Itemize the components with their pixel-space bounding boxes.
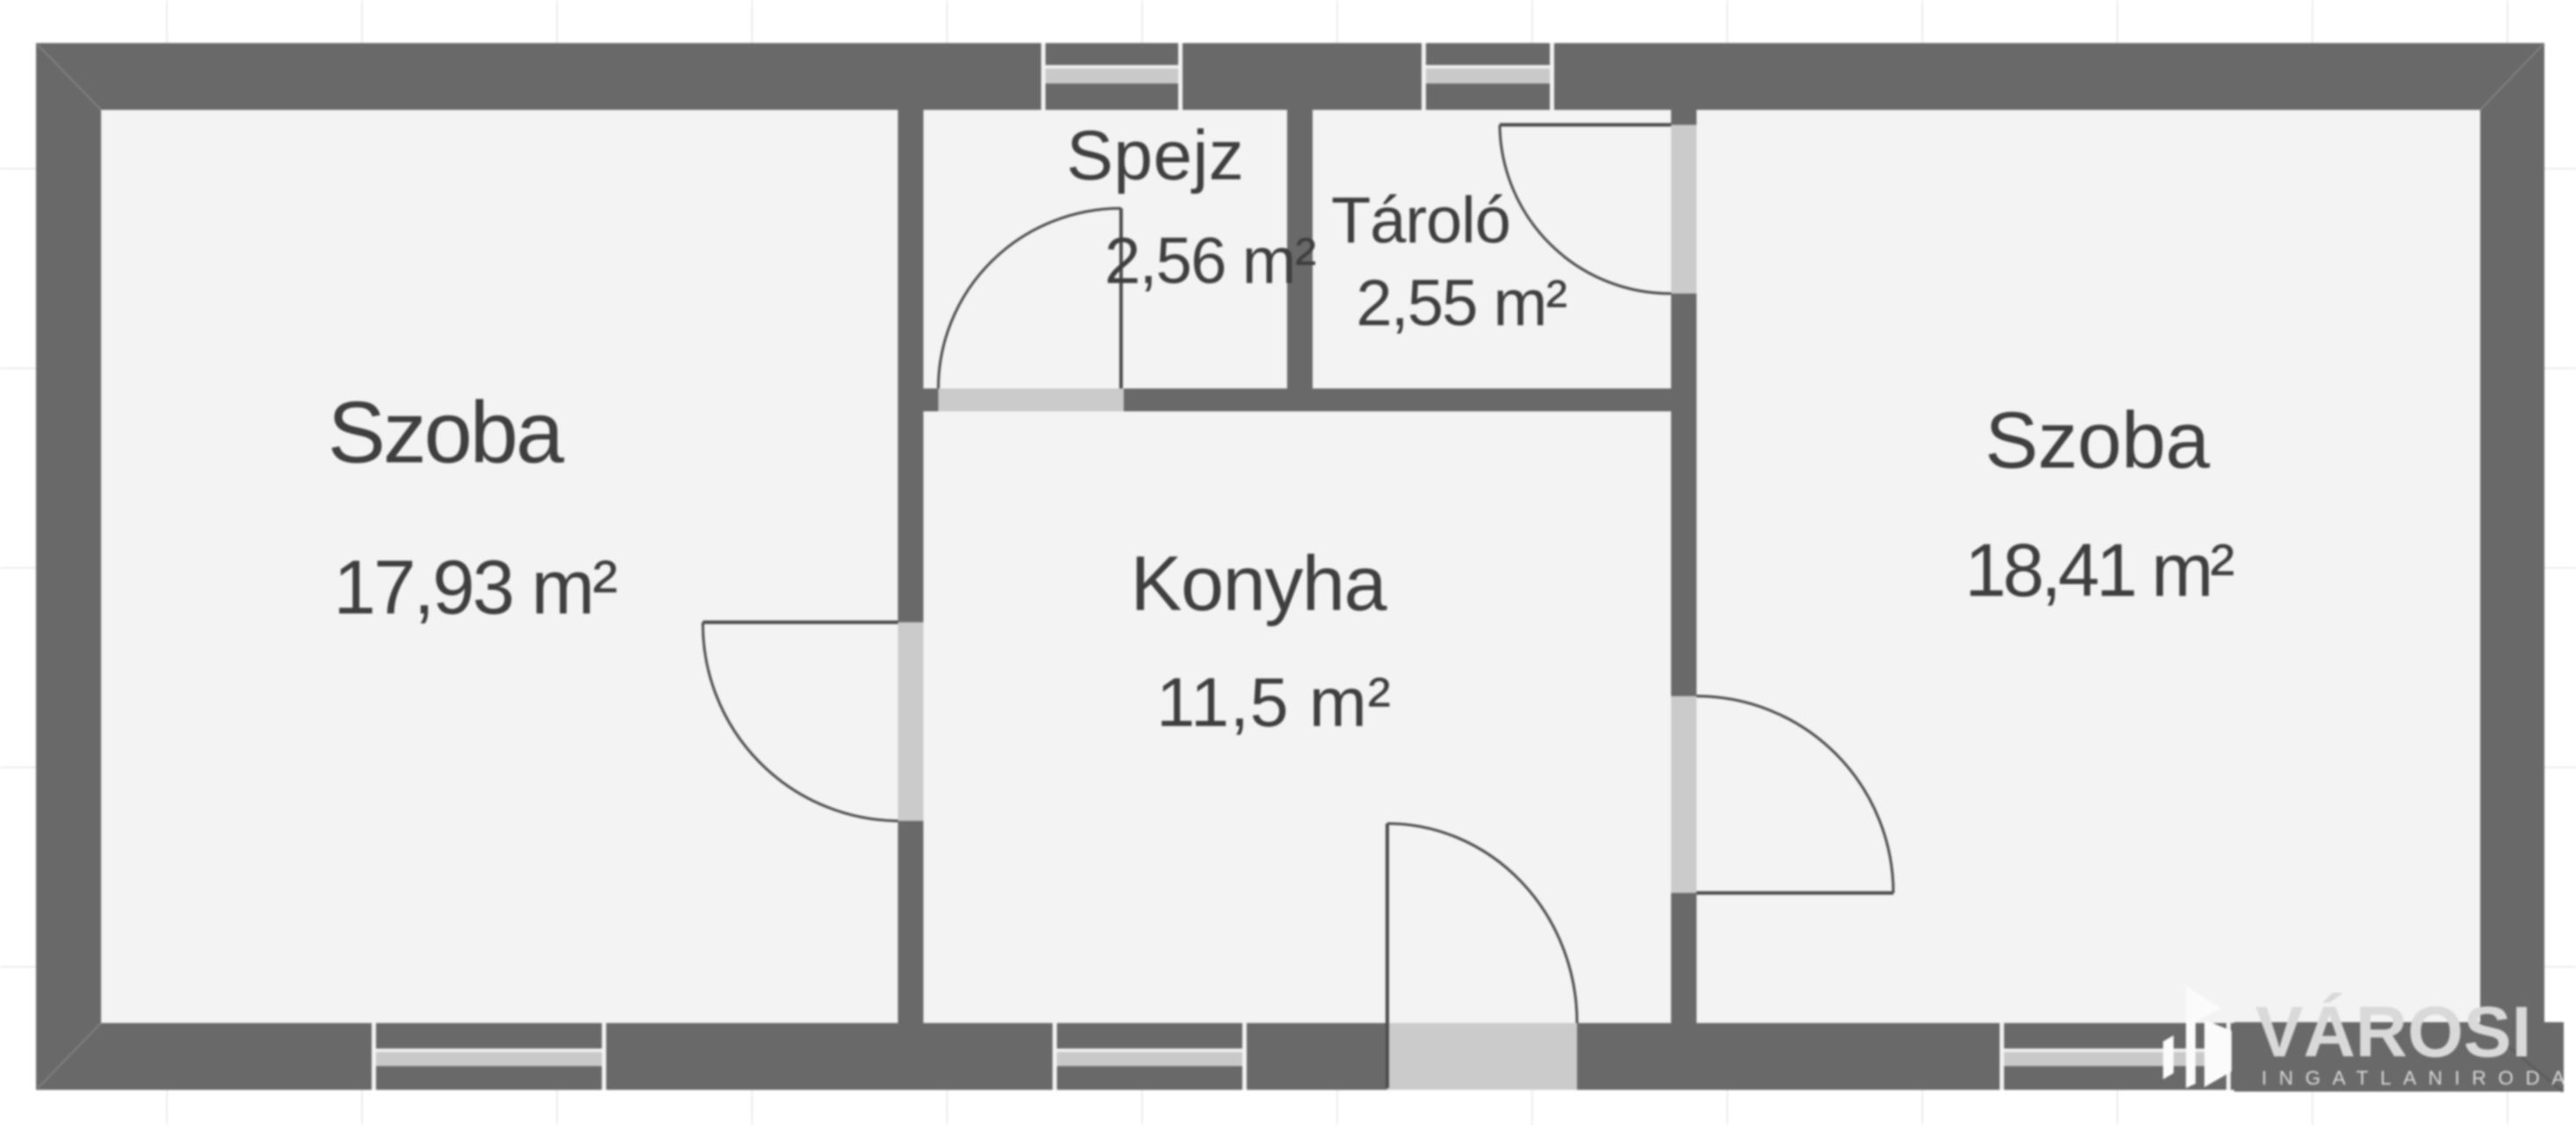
- svg-text:2,56 m²: 2,56 m²: [1104, 224, 1316, 297]
- svg-text:Spejz: Spejz: [1067, 116, 1245, 194]
- svg-text:VÁROSI: VÁROSI: [2255, 992, 2531, 1072]
- svg-text:11,5 m²: 11,5 m²: [1156, 663, 1392, 741]
- svg-text:17,93 m²: 17,93 m²: [334, 545, 618, 630]
- svg-text:2,55 m²: 2,55 m²: [1357, 266, 1567, 339]
- svg-text:INGATLANIRODA: INGATLANIRODA: [2261, 1067, 2576, 1089]
- svg-text:Szoba: Szoba: [328, 383, 565, 481]
- svg-text:Konyha: Konyha: [1131, 540, 1387, 627]
- svg-text:Tároló: Tároló: [1331, 184, 1510, 257]
- svg-text:Szoba: Szoba: [1985, 396, 2210, 485]
- svg-text:18,41 m²: 18,41 m²: [1965, 529, 2233, 613]
